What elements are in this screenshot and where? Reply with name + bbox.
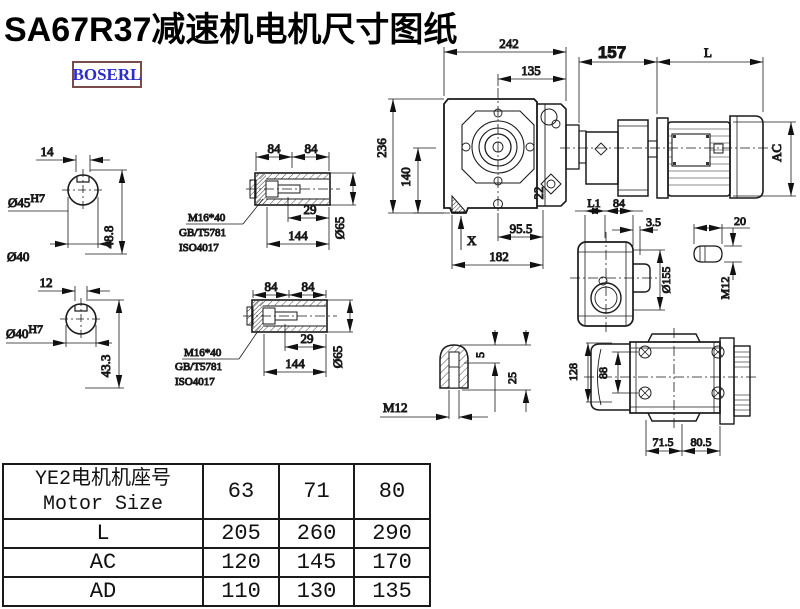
label-bolt: M16*40: [188, 212, 226, 224]
cell-L-71: 260: [279, 519, 354, 548]
dim-182: 182: [489, 249, 509, 264]
cell-AC-80: 170: [354, 548, 430, 577]
view-sleeve-top: 84 84 29 144 Ø65 M16*40 GB/T5781: [179, 141, 356, 254]
view-shaft-end-detail: 5 25 M12: [380, 330, 531, 419]
dim-m12-detail: M12: [383, 400, 408, 415]
row-label-AC: AC: [3, 548, 203, 577]
dim-14: 14: [41, 144, 55, 159]
dim-AC: AC: [769, 144, 784, 162]
header-size-71: 71: [279, 464, 354, 519]
dim-84b: 84: [305, 141, 319, 156]
header-size-63: 63: [203, 464, 279, 519]
label-bolt2: M16*40: [184, 347, 222, 359]
label-std-gb2: GB/T5781: [175, 361, 222, 373]
table-header-row: YE2电机机座号 Motor Size 63 71 80: [3, 464, 430, 519]
dim-3-5: 3.5: [646, 215, 661, 229]
dim-L: L: [704, 45, 712, 60]
label-x: X: [467, 233, 477, 248]
dim-43-3: 43.3: [98, 355, 113, 378]
dim-84a2: 84: [265, 279, 279, 294]
dim-140: 140: [398, 167, 413, 187]
drawing-sheet: SA67R37减速机电机尺寸图纸 BOSERL: [0, 0, 800, 609]
dim-bore-40: Ø40H7: [6, 322, 43, 341]
dim-L1: L1: [587, 196, 600, 210]
header-size-80: 80: [354, 464, 430, 519]
motor-size-table: YE2电机机座号 Motor Size 63 71 80 L 205 260 2…: [2, 463, 431, 607]
dim-bore-45: Ø45H7: [8, 191, 45, 210]
dim-128: 128: [566, 363, 580, 381]
view-side-hollow-shaft: L1 84 3.5: [570, 196, 750, 334]
dim-95-5: 95.5: [510, 221, 533, 236]
table-row-AD: AD 110 130 135: [3, 577, 430, 606]
dim-m12-side: M12: [718, 277, 732, 300]
header-motor-size-cn: YE2电机机座号: [4, 467, 202, 492]
flange-bolts: [639, 346, 724, 399]
dim-242: 242: [499, 36, 519, 51]
dim-22: 22: [531, 187, 546, 200]
row-label-L: L: [3, 519, 203, 548]
dim-29: 29: [304, 202, 317, 217]
cell-AD-63: 110: [203, 577, 279, 606]
dim-84c: 84: [613, 196, 625, 210]
dim-84a: 84: [268, 141, 282, 156]
view-sleeve-bottom: 84 84 29 144 Ø65 M16*40 GB/T5781 ISO4017: [175, 279, 353, 388]
cell-L-80: 290: [354, 519, 430, 548]
dim-135: 135: [521, 63, 541, 78]
dim-20: 20: [734, 214, 746, 228]
view-shaft-section-45: 14 Ø45H7 48.8 Ø40: [7, 144, 127, 264]
dim-40-note: Ø40: [7, 249, 29, 264]
dim-o65b: Ø65: [330, 346, 345, 368]
dim-144b: 144: [285, 356, 305, 371]
dim-12: 12: [40, 275, 53, 290]
dim-5: 5: [473, 352, 487, 358]
cell-AD-71: 130: [279, 577, 354, 606]
view-bottom-flange: 128 88 71.5 80.5: [566, 328, 757, 456]
header-motor-size: YE2电机机座号 Motor Size: [3, 464, 203, 519]
view-shaft-section-40: 12 Ø40H7 43.3: [6, 275, 124, 388]
row-label-AD: AD: [3, 577, 203, 606]
cell-AC-71: 145: [279, 548, 354, 577]
cell-AD-80: 135: [354, 577, 430, 606]
label-std-gb: GB/T5781: [179, 227, 226, 239]
dim-88: 88: [596, 367, 610, 379]
cell-L-63: 205: [203, 519, 279, 548]
table-row-L: L 205 260 290: [3, 519, 430, 548]
dim-236: 236: [374, 138, 389, 158]
cell-AC-63: 120: [203, 548, 279, 577]
label-std-iso2: ISO4017: [175, 376, 215, 388]
dim-29b: 29: [301, 331, 314, 346]
label-std-iso: ISO4017: [179, 242, 219, 254]
dim-144: 144: [288, 228, 308, 243]
dim-25: 25: [505, 372, 519, 384]
dim-84b2: 84: [302, 279, 316, 294]
dim-o155: Ø155: [659, 267, 673, 294]
header-motor-size-en: Motor Size: [4, 492, 202, 517]
dim-80-5: 80.5: [691, 435, 712, 449]
table-row-AC: AC 120 145 170: [3, 548, 430, 577]
dim-o65: Ø65: [332, 217, 347, 239]
dim-71-5: 71.5: [653, 435, 674, 449]
dim-48-8: 48.8: [101, 226, 116, 249]
dim-157: 157: [598, 43, 626, 62]
